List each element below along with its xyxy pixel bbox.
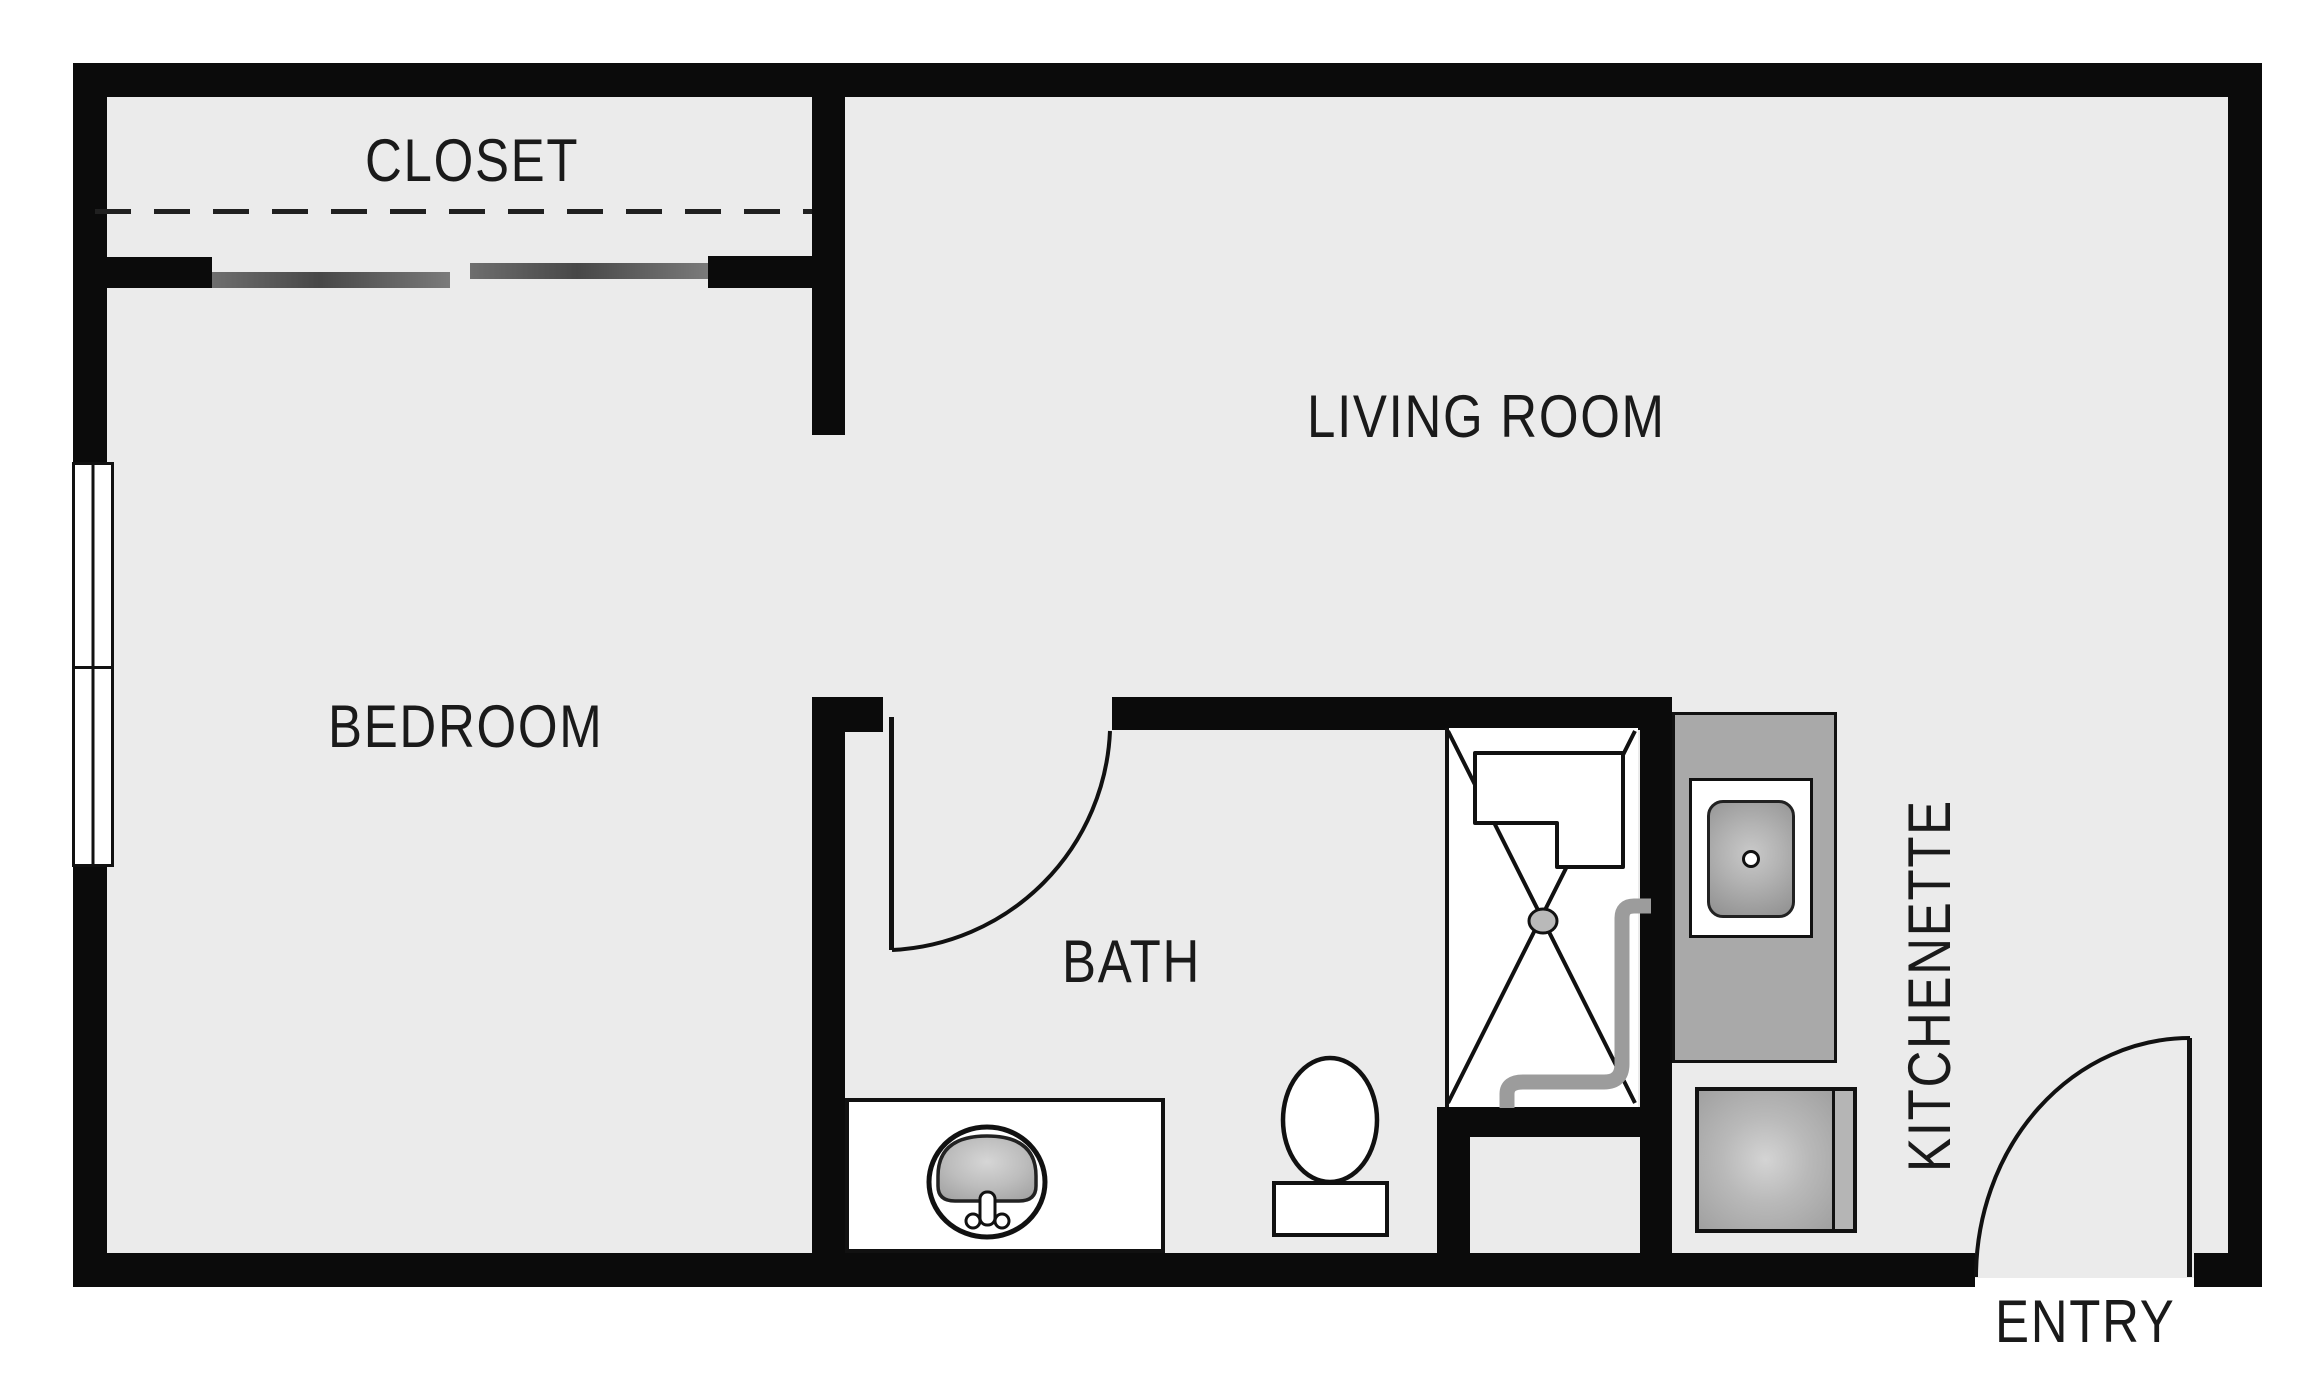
window-mullion-horizontal — [75, 666, 111, 669]
room-label-kitchenette: KITCHENETTE — [1900, 799, 1960, 1172]
room-label-bedroom: BEDROOM — [328, 697, 603, 757]
wall-bottom — [73, 1253, 1975, 1287]
wall-niche-left — [1437, 1137, 1470, 1253]
room-label-bath: BATH — [1062, 932, 1201, 992]
bath-vanity-counter — [845, 1098, 1165, 1253]
shower-pan — [1445, 728, 1638, 1107]
room-label-living-room: LIVING ROOM — [1307, 387, 1666, 447]
room-label-entry: ENTRY — [1995, 1292, 2175, 1352]
wall-bottom-right — [2194, 1253, 2262, 1287]
wall-bath-west-header — [812, 697, 883, 732]
wall-shower-east — [1640, 730, 1672, 1253]
wall-bath-north — [1112, 697, 1672, 730]
bedroom-window — [72, 462, 114, 867]
room-label-closet: CLOSET — [365, 131, 579, 191]
wall-right — [2228, 97, 2262, 1253]
wall-closet-stub-right — [708, 256, 845, 288]
kitchen-sink-drain — [1742, 850, 1760, 868]
window-mullion-vertical — [92, 465, 95, 864]
appliance-handle — [1835, 1091, 1853, 1229]
wall-closet-stub-left — [107, 257, 212, 288]
closet-sliding-door-right — [470, 263, 708, 279]
closet-shelf-dashed-line — [95, 209, 812, 214]
wall-below-shower — [1437, 1107, 1672, 1137]
wall-left-lower — [73, 867, 107, 1287]
appliance-top — [1699, 1091, 1835, 1229]
wall-bedroom-bath — [812, 732, 845, 1253]
floor-entry-opening — [1975, 1253, 2194, 1278]
floor-plan: CLOSET LIVING ROOM BEDROOM BATH KITCHENE… — [0, 0, 2306, 1398]
wall-top — [73, 63, 2262, 97]
wall-left-upper — [73, 97, 107, 462]
closet-sliding-door-left — [212, 272, 450, 288]
kitchenette-appliance — [1695, 1087, 1857, 1233]
